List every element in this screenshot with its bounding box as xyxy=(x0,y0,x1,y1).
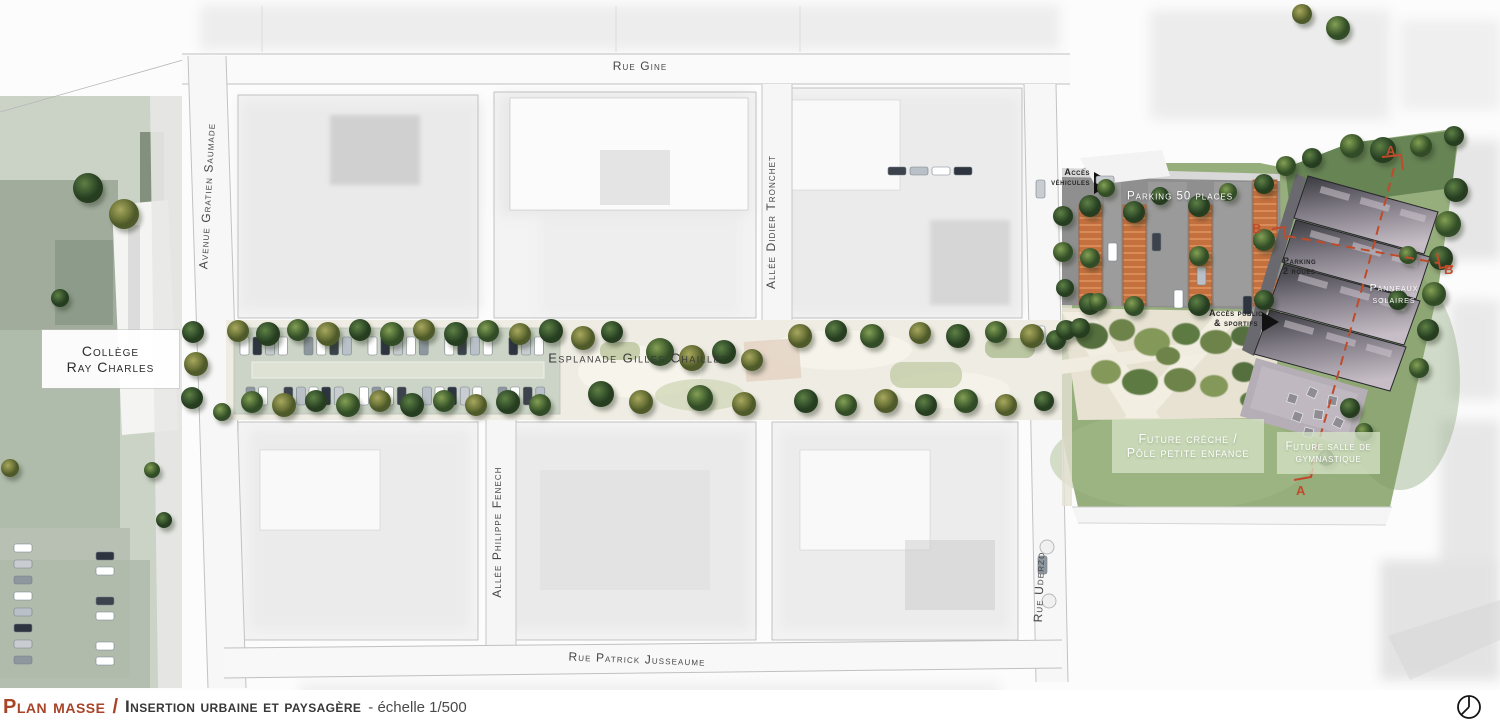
site-plan: Rue Gine Avenue Gratien Saumade Allée Di… xyxy=(0,0,1500,724)
footer-scale: - échelle 1/500 xyxy=(368,699,466,716)
footer-subtitle: Insertion urbaine et paysagère xyxy=(125,697,361,717)
plan-graphic xyxy=(0,0,1500,724)
footer-separator: / xyxy=(112,696,118,719)
footer: Plan masse / Insertion urbaine et paysag… xyxy=(0,690,1500,724)
footer-title: Plan masse xyxy=(3,696,105,719)
north-arrow-icon xyxy=(1455,693,1483,721)
